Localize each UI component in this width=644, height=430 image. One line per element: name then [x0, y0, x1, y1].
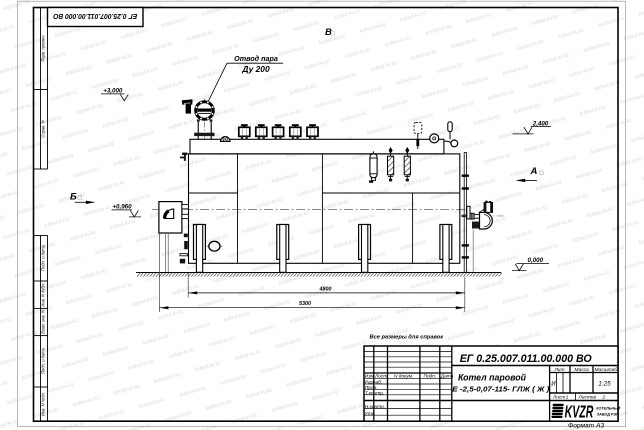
svg-text:Подп. и дата: Подп. и дата [41, 347, 46, 373]
svg-text:Утв.: Утв. [365, 411, 376, 417]
svg-text:Котел паровой: Котел паровой [458, 373, 527, 383]
svg-text:Ду 200: Ду 200 [241, 64, 270, 74]
svg-text:KVZR: KVZR [565, 401, 594, 421]
svg-text:Е -2,5-0,07-115- ГЛЖ ( Ж ): Е -2,5-0,07-115- ГЛЖ ( Ж ) [452, 384, 549, 393]
svg-text:Б: Б [70, 192, 77, 203]
svg-text:КОТЕЛЬНЫЙ: КОТЕЛЬНЫЙ [596, 407, 620, 411]
svg-text:Отвод пара: Отвод пара [234, 54, 278, 63]
svg-text:4800: 4800 [319, 286, 332, 292]
svg-text:Разраб.: Разраб. [365, 380, 382, 386]
svg-text:N докум.: N докум. [394, 374, 413, 380]
svg-text:0,000: 0,000 [528, 257, 544, 264]
svg-text:1:25: 1:25 [598, 381, 611, 388]
svg-text:Масса: Масса [575, 367, 590, 373]
svg-text:Н.контр.: Н.контр. [365, 404, 385, 410]
svg-text:ЕГ 0.25.007.011.00.000 ВО: ЕГ 0.25.007.011.00.000 ВО [460, 353, 593, 365]
svg-text:Подп.: Подп. [424, 374, 437, 380]
svg-text:ЕГ 0.25.007.011.00.000 ВО: ЕГ 0.25.007.011.00.000 ВО [53, 12, 137, 20]
svg-text:1: 1 [566, 395, 569, 401]
svg-text:Листов: Листов [578, 395, 597, 401]
svg-text:5300: 5300 [299, 301, 311, 307]
svg-text:Масштаб: Масштаб [595, 367, 618, 373]
svg-text:Справ. N: Справ. N [41, 120, 46, 137]
svg-text:Изм.: Изм. [365, 374, 375, 380]
svg-text:+0,960: +0,960 [112, 204, 132, 211]
svg-text:ЗАВОД РЭП: ЗАВОД РЭП [597, 412, 619, 416]
svg-text:Инв. N подл.: Инв. N подл. [41, 392, 46, 416]
svg-text:Лист: Лист [552, 395, 565, 401]
svg-text:Дата: Дата [440, 374, 454, 380]
svg-text:Все размеры для справок: Все размеры для справок [370, 335, 445, 341]
svg-text:А: А [530, 166, 538, 177]
svg-text:2: 2 [602, 395, 606, 401]
svg-text:Пров.: Пров. [365, 385, 378, 391]
svg-text:Лист: Лист [374, 374, 387, 380]
svg-text:Формат А3: Формат А3 [568, 422, 604, 429]
svg-text:Инв. N дубл.: Инв. N дубл. [41, 283, 46, 307]
svg-text:Т.контр.: Т.контр. [365, 391, 384, 397]
svg-text:И: И [551, 381, 556, 387]
svg-text:Взам. инв. N: Взам. инв. N [41, 310, 46, 334]
svg-text:Перв. примен.: Перв. примен. [41, 34, 46, 61]
svg-text:+3,000: +3,000 [103, 88, 123, 95]
svg-text:Лит.: Лит. [554, 367, 566, 373]
svg-text:Подп. и дата: Подп. и дата [41, 244, 46, 270]
